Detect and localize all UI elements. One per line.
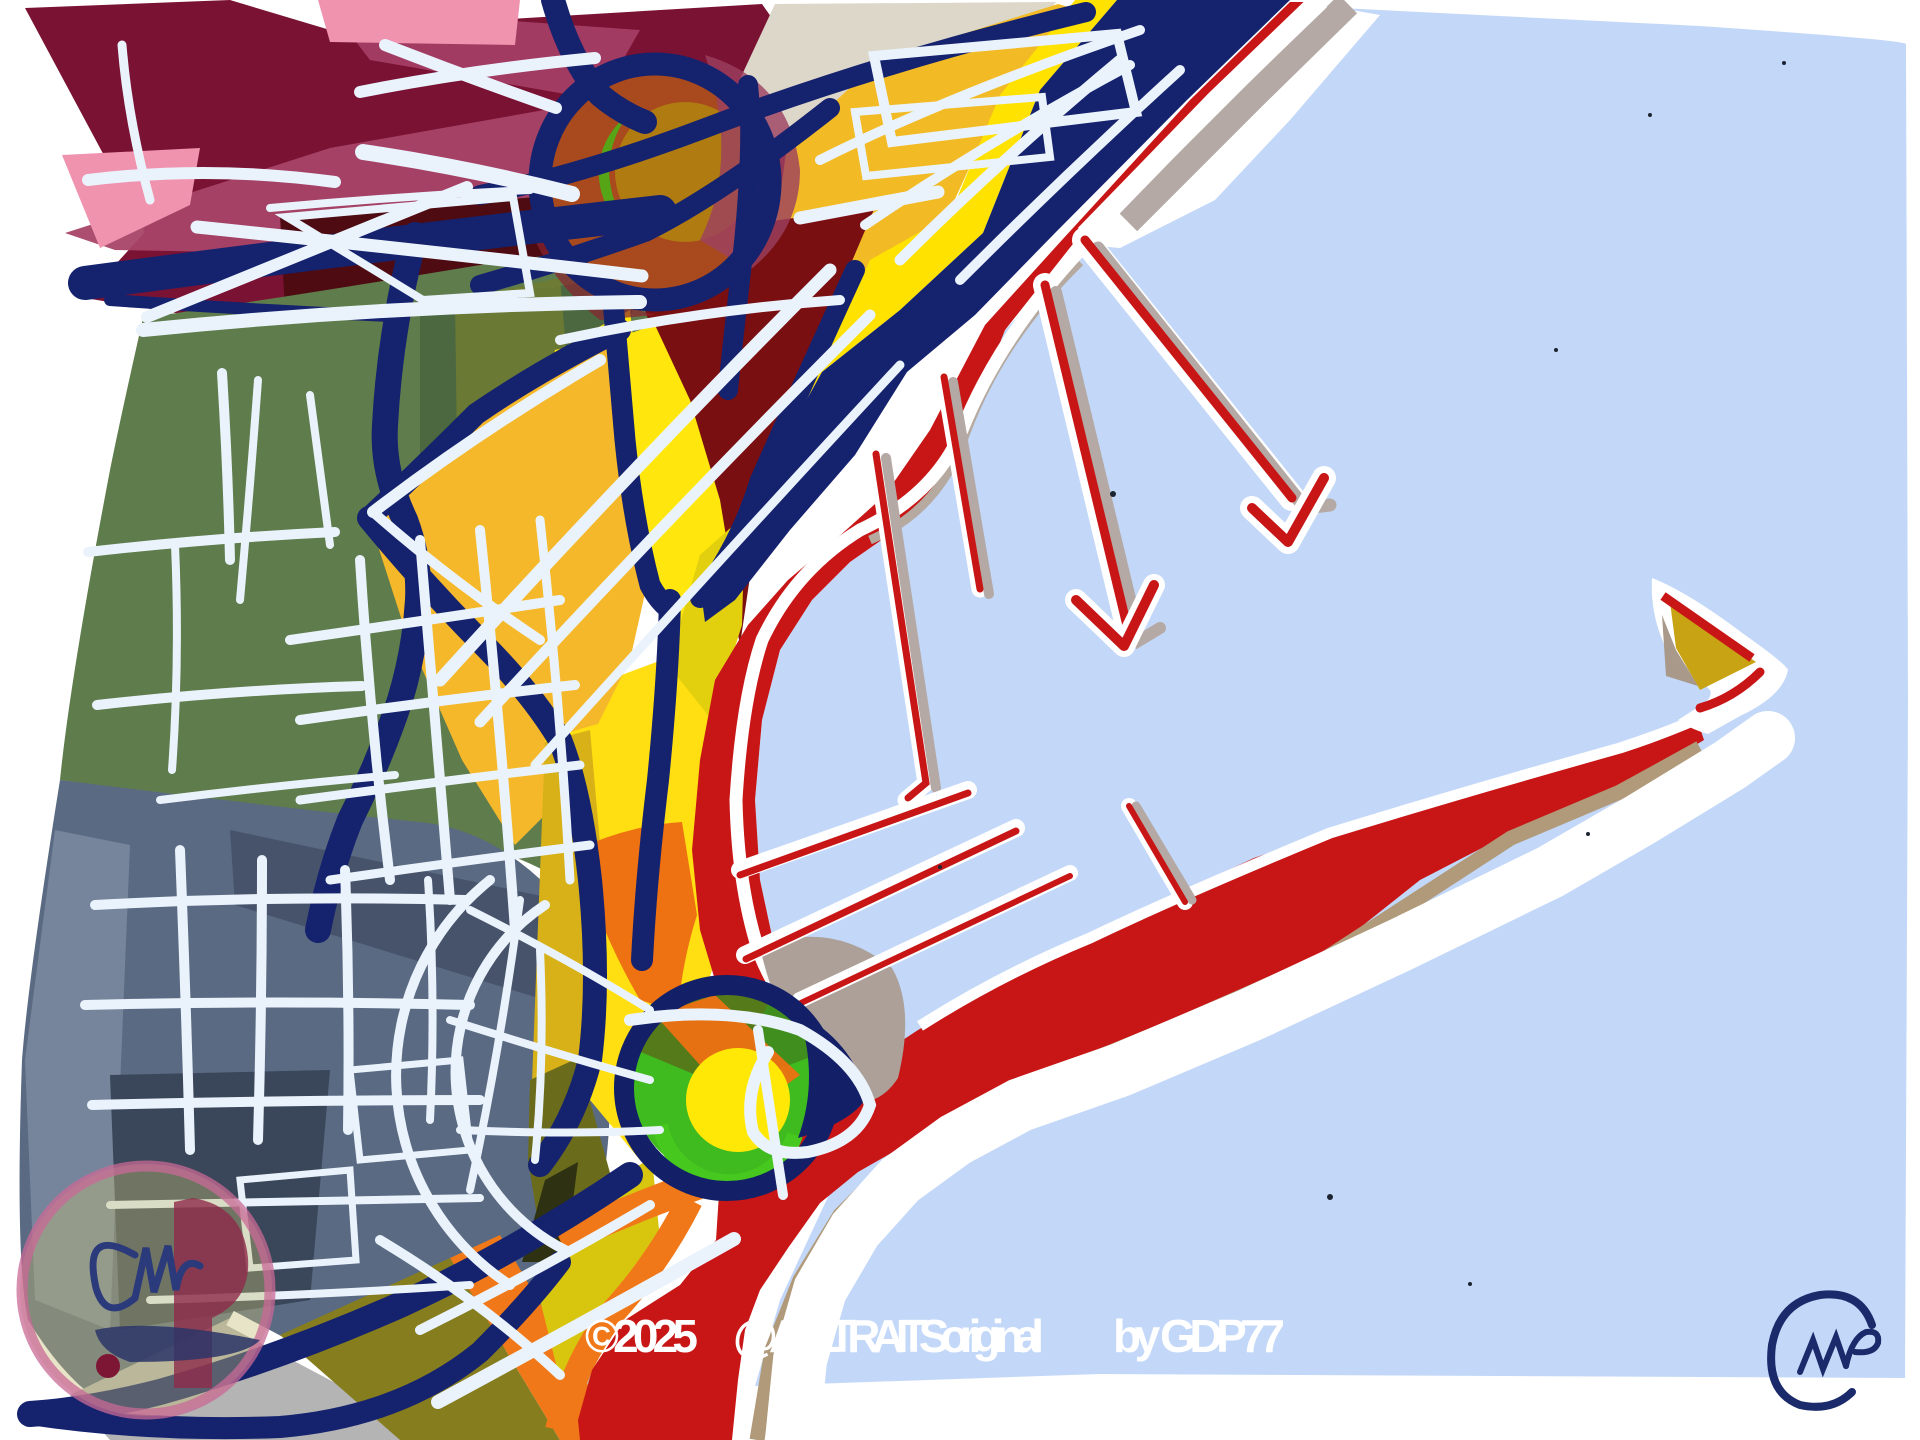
svg-text:@ALLTRAITSoriginal: @ALLTRAITSoriginal <box>733 1310 1044 1362</box>
svg-text:by GDP77: by GDP77 <box>1113 1310 1285 1362</box>
svg-text:©2025: ©2025 <box>585 1310 698 1362</box>
